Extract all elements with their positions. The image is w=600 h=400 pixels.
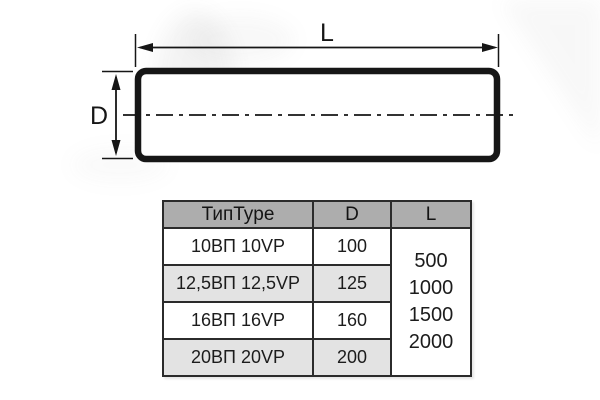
diameter-cell: 160 xyxy=(313,302,391,339)
type-cell: 12,5ВП 12,5VP xyxy=(163,265,313,302)
header-length: L xyxy=(391,201,471,228)
diameter-cell: 125 xyxy=(313,265,391,302)
diameter-arrow-down-icon xyxy=(112,140,121,156)
length-value: 1500 xyxy=(392,302,470,329)
diameter-dimension-label: D xyxy=(90,102,108,130)
length-values-cell: 500 1000 1500 2000 xyxy=(391,228,471,376)
length-dimension-label: L xyxy=(320,19,334,47)
diameter-cell: 200 xyxy=(313,339,391,376)
length-arrow-right-icon xyxy=(482,43,498,52)
header-type: ТипType xyxy=(163,201,313,228)
table-row: 10ВП 10VP 100 500 1000 1500 2000 xyxy=(163,228,471,265)
spec-table: ТипType D L 10ВП 10VP 100 500 1000 1500 … xyxy=(162,200,472,377)
spec-table-header-row: ТипType D L xyxy=(163,201,471,228)
type-cell: 16ВП 16VP xyxy=(163,302,313,339)
type-cell: 20ВП 20VP xyxy=(163,339,313,376)
diameter-cell: 100 xyxy=(313,228,391,265)
product-spec-image: L D ТипType D L 10ВП 10VP 100 xyxy=(0,0,600,400)
type-cell: 10ВП 10VP xyxy=(163,228,313,265)
duct-technical-drawing: L D xyxy=(0,0,600,195)
diameter-arrow-up-icon xyxy=(112,74,121,90)
header-diameter: D xyxy=(313,201,391,228)
length-value: 2000 xyxy=(392,329,470,356)
length-value: 500 xyxy=(392,248,470,275)
length-arrow-left-icon xyxy=(137,43,153,52)
length-value: 1000 xyxy=(392,275,470,302)
